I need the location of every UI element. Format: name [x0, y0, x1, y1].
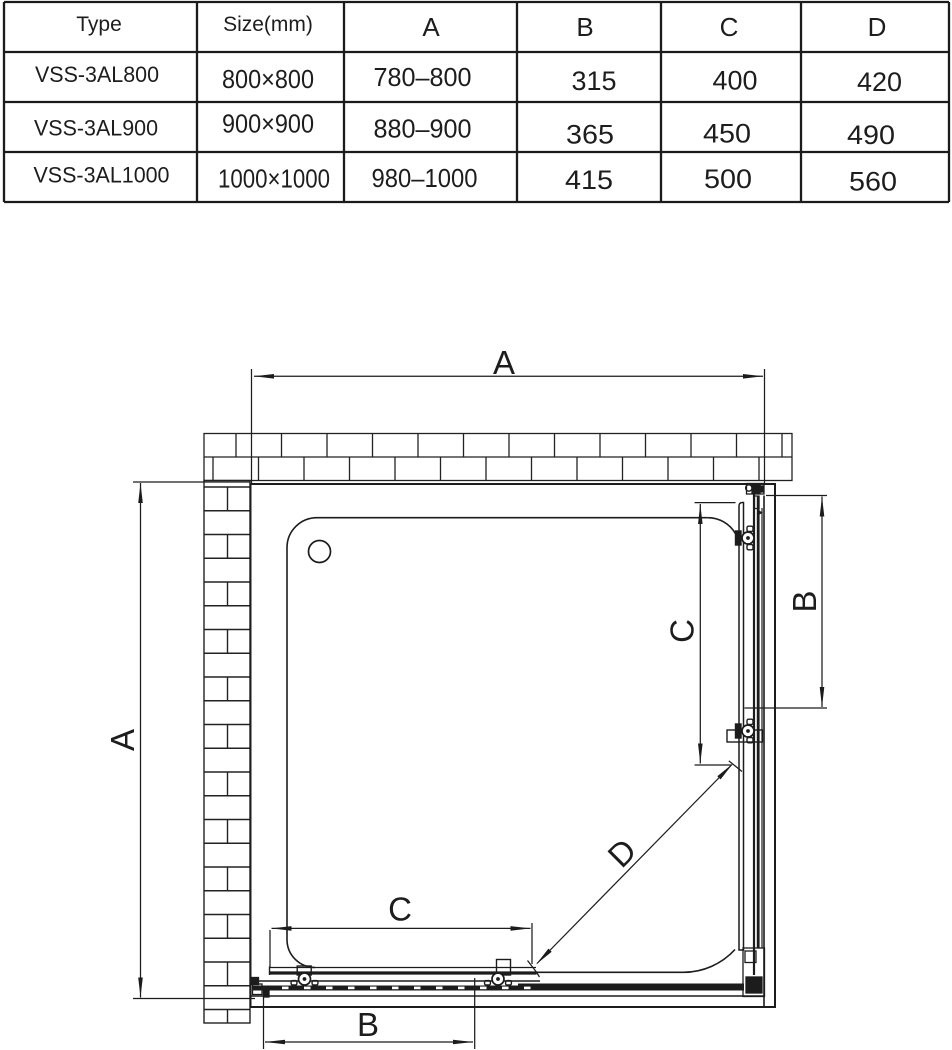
- svg-text:365: 365: [566, 120, 614, 150]
- svg-text:500: 500: [704, 164, 752, 194]
- svg-text:C: C: [388, 891, 412, 928]
- svg-text:VSS-3AL900: VSS-3AL900: [34, 116, 158, 141]
- svg-text:VSS-3AL800: VSS-3AL800: [35, 62, 159, 87]
- svg-text:C: C: [664, 619, 701, 643]
- svg-text:415: 415: [565, 165, 613, 195]
- svg-text:420: 420: [857, 67, 902, 97]
- svg-text:D: D: [868, 12, 887, 42]
- svg-text:315: 315: [572, 66, 617, 96]
- svg-text:1000×1000: 1000×1000: [218, 164, 330, 194]
- svg-text:780–800: 780–800: [374, 62, 472, 92]
- svg-text:980–1000: 980–1000: [372, 163, 478, 193]
- svg-text:450: 450: [703, 119, 751, 149]
- svg-text:A: A: [104, 729, 141, 751]
- svg-text:C: C: [720, 12, 739, 42]
- svg-text:Size(mm): Size(mm): [223, 13, 313, 36]
- svg-text:560: 560: [849, 167, 897, 197]
- svg-text:B: B: [357, 1006, 379, 1043]
- svg-text:880–900: 880–900: [374, 114, 472, 144]
- svg-text:A: A: [422, 12, 440, 42]
- svg-text:B: B: [786, 590, 823, 612]
- svg-text:VSS-3AL1000: VSS-3AL1000: [34, 162, 170, 187]
- svg-text:490: 490: [847, 120, 895, 150]
- svg-text:A: A: [493, 344, 515, 381]
- svg-text:900×900: 900×900: [222, 109, 314, 139]
- svg-text:B: B: [576, 12, 593, 42]
- svg-text:800×800: 800×800: [222, 64, 314, 94]
- svg-text:400: 400: [713, 66, 758, 96]
- svg-text:Type: Type: [76, 13, 122, 36]
